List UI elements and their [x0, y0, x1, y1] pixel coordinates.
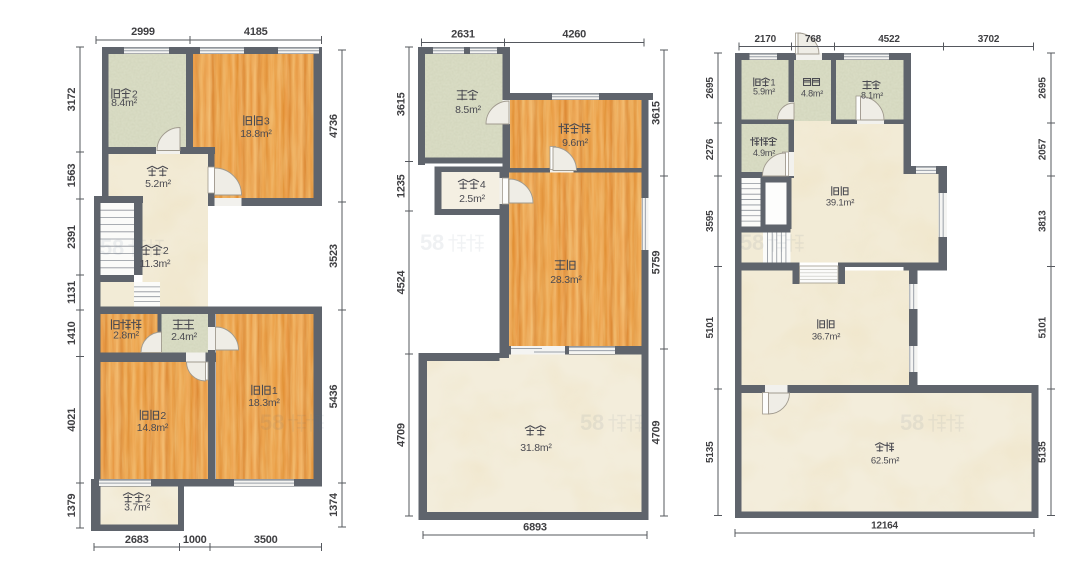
svg-text:2631: 2631	[451, 29, 475, 41]
svg-text:2.4m²: 2.4m²	[171, 331, 198, 343]
svg-text:4: 4	[480, 179, 486, 191]
svg-text:2: 2	[160, 410, 166, 422]
svg-text:1410: 1410	[66, 321, 78, 345]
svg-text:4185: 4185	[244, 26, 268, 38]
svg-text:1: 1	[272, 385, 278, 397]
svg-text:62.5m²: 62.5m²	[871, 456, 899, 467]
svg-text:2999: 2999	[131, 26, 155, 38]
svg-text:4709: 4709	[395, 423, 407, 447]
svg-text:4524: 4524	[395, 270, 407, 295]
svg-text:1235: 1235	[395, 174, 407, 198]
svg-text:18.8m²: 18.8m²	[240, 128, 272, 140]
svg-text:3702: 3702	[978, 34, 1000, 45]
svg-text:1563: 1563	[66, 164, 78, 188]
svg-text:12164: 12164	[871, 521, 898, 532]
svg-text:5135: 5135	[1038, 441, 1049, 463]
svg-text:4522: 4522	[878, 34, 900, 45]
svg-text:3: 3	[264, 115, 270, 127]
svg-text:5436: 5436	[328, 385, 340, 409]
svg-text:36.7m²: 36.7m²	[812, 332, 840, 343]
svg-text:3500: 3500	[254, 534, 278, 546]
svg-text:2683: 2683	[125, 534, 149, 546]
svg-text:5135: 5135	[705, 441, 716, 463]
svg-text:5.2m²: 5.2m²	[145, 178, 172, 190]
svg-text:3615: 3615	[650, 101, 662, 125]
svg-text:2.8m²: 2.8m²	[113, 330, 140, 342]
svg-text:58: 58	[900, 410, 924, 435]
svg-text:4260: 4260	[562, 29, 586, 41]
svg-text:1379: 1379	[66, 494, 78, 518]
svg-text:5759: 5759	[650, 251, 662, 275]
svg-text:14.8m²: 14.8m²	[137, 422, 169, 434]
svg-text:5101: 5101	[705, 316, 716, 338]
svg-text:1374: 1374	[328, 492, 340, 517]
svg-text:5.9m²: 5.9m²	[753, 87, 775, 97]
svg-text:2.5m²: 2.5m²	[459, 193, 486, 205]
svg-text:4021: 4021	[66, 408, 78, 432]
svg-text:6893: 6893	[523, 522, 547, 534]
svg-text:2057: 2057	[1038, 138, 1049, 160]
svg-text:2: 2	[163, 245, 169, 257]
svg-text:2695: 2695	[705, 77, 716, 99]
svg-text:4709: 4709	[650, 421, 662, 445]
svg-text:1000: 1000	[183, 534, 207, 546]
svg-text:58: 58	[420, 230, 444, 255]
svg-text:5101: 5101	[1038, 316, 1049, 338]
svg-text:18.3m²: 18.3m²	[248, 397, 280, 409]
svg-text:8.1m²: 8.1m²	[861, 91, 883, 101]
svg-text:3615: 3615	[395, 92, 407, 116]
svg-text:8.5m²: 8.5m²	[455, 104, 482, 116]
svg-text:58: 58	[580, 410, 604, 435]
svg-text:28.3m²: 28.3m²	[550, 274, 582, 286]
svg-text:4736: 4736	[328, 114, 340, 138]
svg-text:1131: 1131	[66, 281, 78, 304]
svg-text:2695: 2695	[1038, 77, 1049, 99]
svg-text:3.7m²: 3.7m²	[124, 502, 151, 514]
svg-text:58: 58	[740, 230, 764, 255]
svg-text:58: 58	[260, 410, 284, 435]
svg-text:3172: 3172	[66, 88, 78, 112]
svg-text:11.3m²: 11.3m²	[140, 258, 171, 270]
svg-text:3813: 3813	[1038, 210, 1049, 232]
svg-text:9.6m²: 9.6m²	[562, 137, 589, 149]
svg-text:4.9m²: 4.9m²	[753, 148, 775, 158]
svg-text:58: 58	[100, 235, 124, 260]
svg-text:31.8m²: 31.8m²	[520, 442, 552, 454]
svg-text:8.4m²: 8.4m²	[111, 97, 138, 109]
svg-text:39.1m²: 39.1m²	[826, 198, 854, 209]
svg-text:4.8m²: 4.8m²	[801, 89, 823, 99]
svg-text:2391: 2391	[66, 225, 78, 249]
svg-text:3523: 3523	[328, 244, 340, 268]
svg-text:3595: 3595	[705, 210, 716, 232]
svg-text:2170: 2170	[755, 34, 777, 45]
svg-text:768: 768	[805, 34, 822, 45]
svg-text:2276: 2276	[705, 138, 716, 160]
